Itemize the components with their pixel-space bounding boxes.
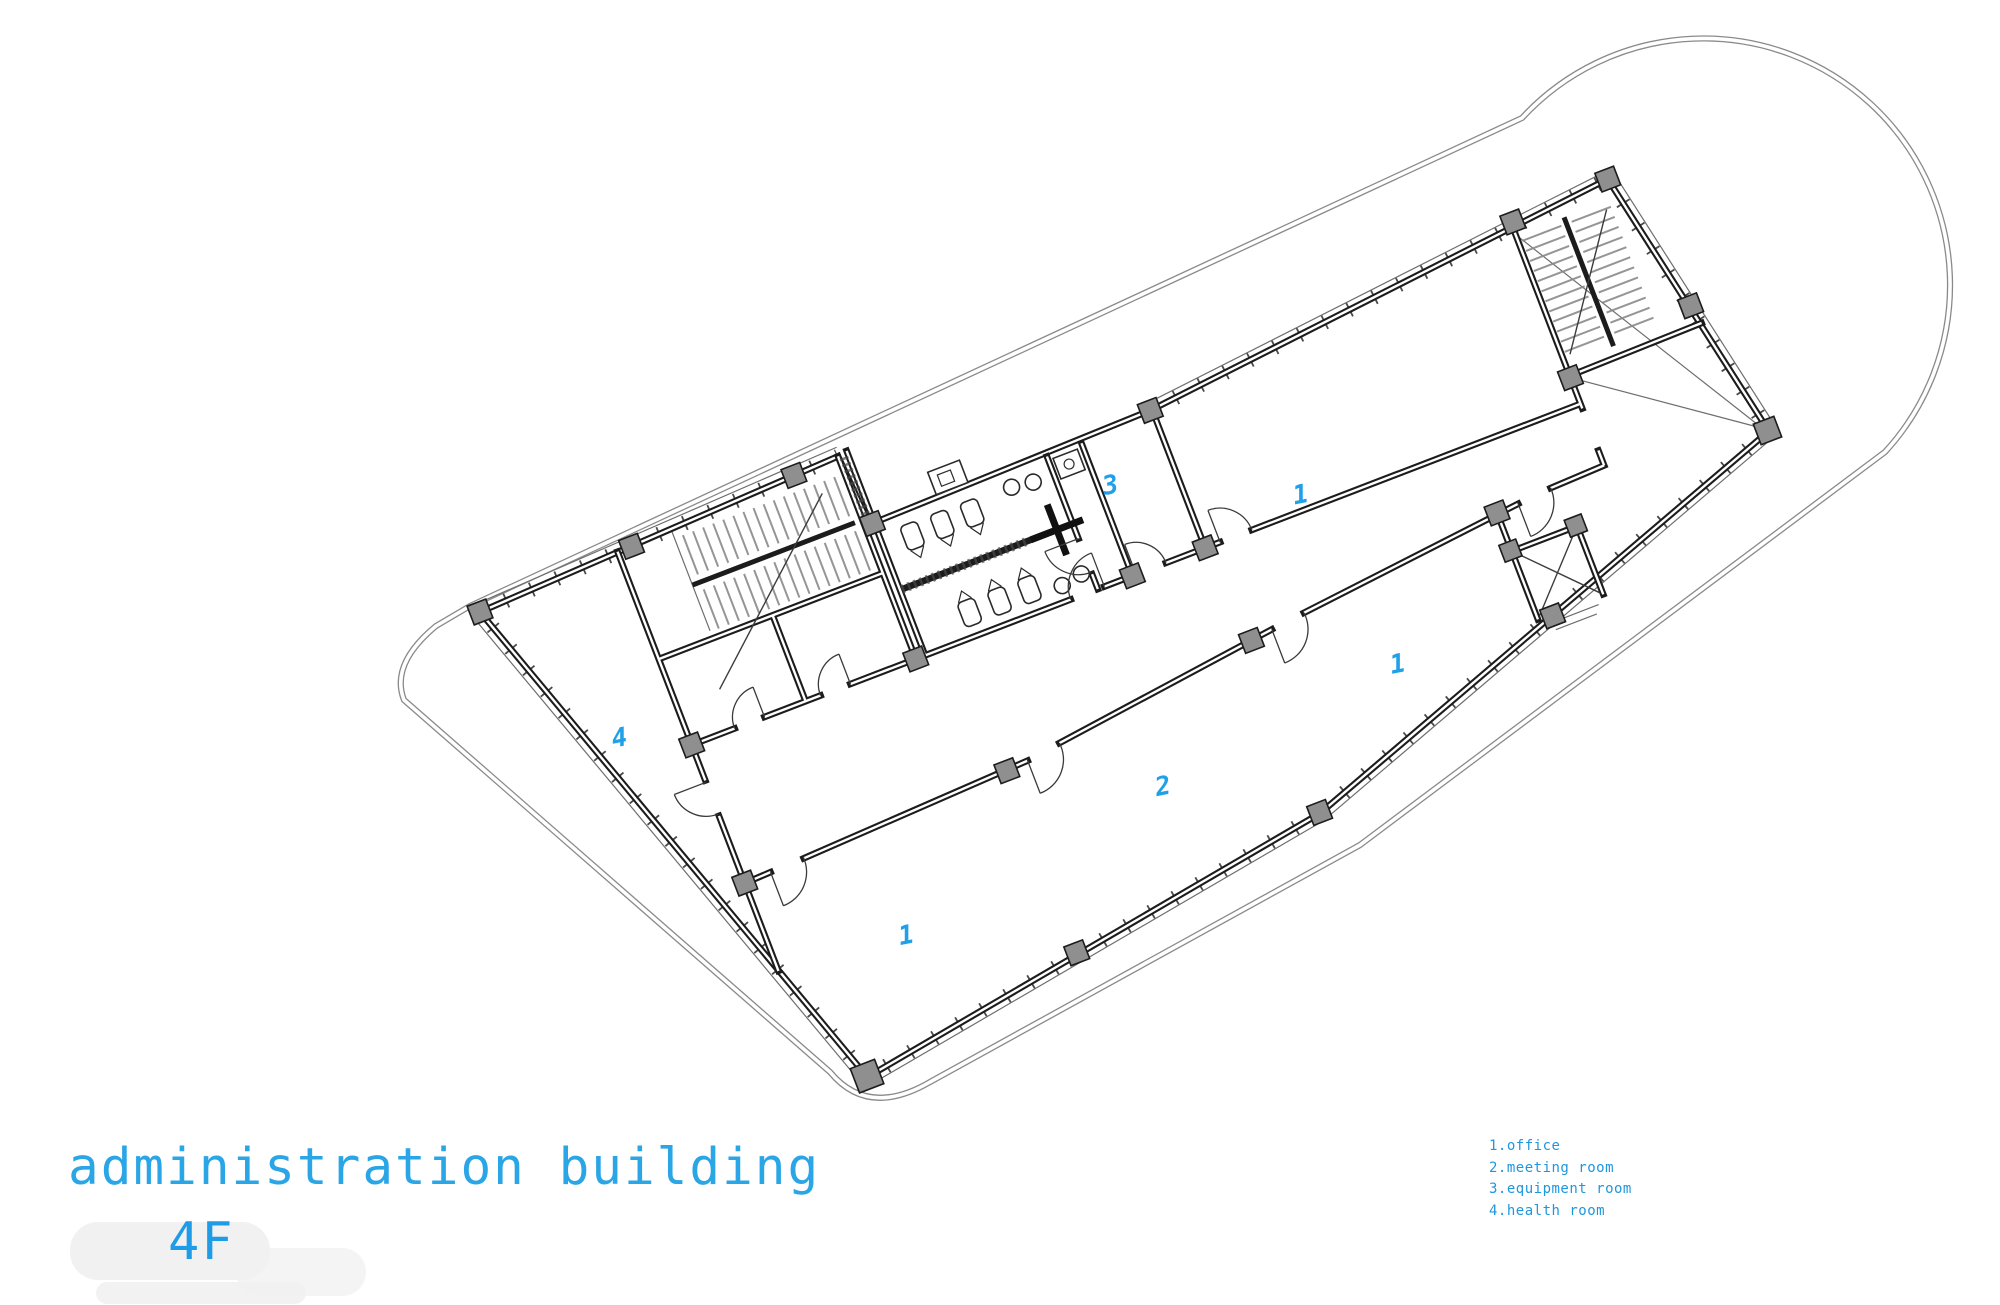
floor-label: 4F <box>168 1216 235 1268</box>
room-number-meeting-room: 2 <box>1151 771 1173 804</box>
exterior-walls <box>474 142 1869 1147</box>
floor-plan-drawing: 4 1 2 1 1 3 <box>0 0 2000 1305</box>
sink-icon <box>1001 477 1022 498</box>
drawing-title: administration building <box>68 1142 820 1193</box>
legend-item-equipment-room: 3.equipment room <box>1489 1179 1632 1201</box>
legend-item-health-room: 4.health room <box>1489 1201 1632 1223</box>
window-ticks <box>474 142 1869 1147</box>
room-number-office-right: 1 <box>1387 648 1408 680</box>
toilet-stall-icon <box>959 498 989 538</box>
legend: 1.office 2.meeting room 3.equipment room… <box>1489 1136 1632 1222</box>
floor-plan-page: 4 1 2 1 1 3 administration building 4F 1… <box>0 0 2000 1305</box>
room-number-office-top: 1 <box>1290 479 1311 511</box>
sink-icon <box>1023 472 1044 493</box>
columns <box>462 131 1883 1162</box>
legend-item-office: 1.office <box>1489 1136 1632 1158</box>
toilet-stall-icon <box>953 588 983 628</box>
toilet-stall-icon <box>1013 565 1043 605</box>
room-number-office-bottom-left: 1 <box>896 920 917 952</box>
legend-item-meeting-room: 2.meeting room <box>1489 1158 1632 1180</box>
toilet-stall-icon <box>983 576 1013 616</box>
room-number-health-room: 4 <box>609 722 630 754</box>
wc-closet <box>1053 449 1085 479</box>
toilet-stall-icon <box>899 521 929 561</box>
building-envelope <box>401 38 1950 1097</box>
stair-right <box>1523 202 1653 362</box>
building-plan: 4 1 2 1 1 3 <box>461 130 1882 1162</box>
glazing-lines <box>463 130 1879 1157</box>
plumbing-cross <box>1021 495 1093 565</box>
toilet-stall-icon <box>929 509 959 549</box>
